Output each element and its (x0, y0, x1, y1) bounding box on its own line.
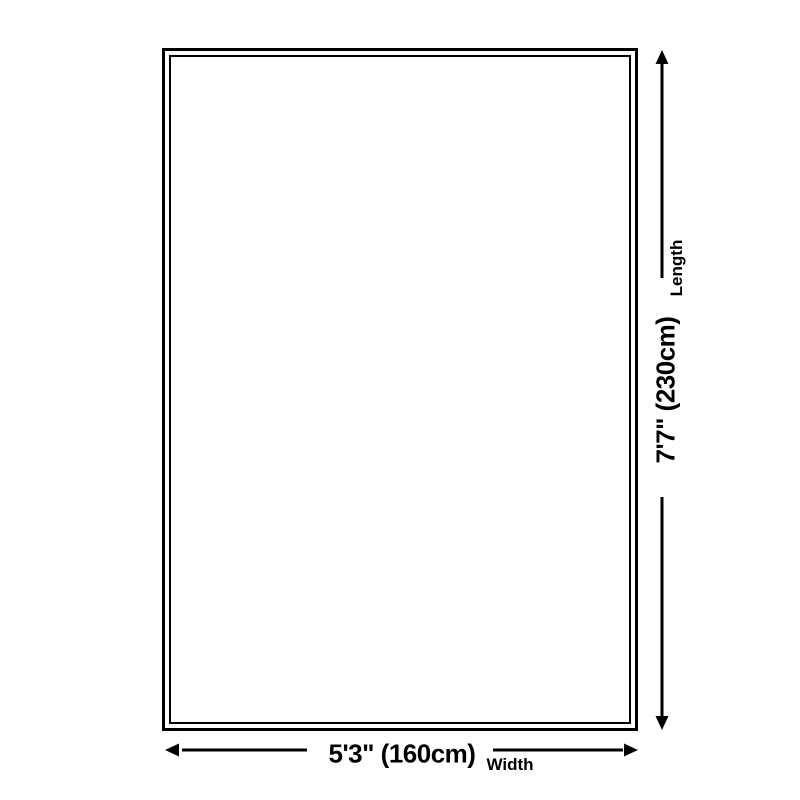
width-value: 5'3" (160cm) (329, 739, 476, 770)
arrow-down-icon (656, 716, 669, 730)
width-label: Width (486, 755, 533, 775)
arrow-up-icon (656, 50, 669, 64)
rug-inner-outline (169, 55, 631, 724)
length-value: 7'7" (230cm) (651, 317, 682, 464)
arrow-left-icon (165, 744, 179, 757)
rug-outline (162, 48, 638, 731)
arrow-right-icon (624, 744, 638, 757)
length-label: Length (667, 240, 687, 297)
rug-size-diagram: 7'7" (230cm) Length 5'3" (160cm) Width (0, 0, 800, 800)
